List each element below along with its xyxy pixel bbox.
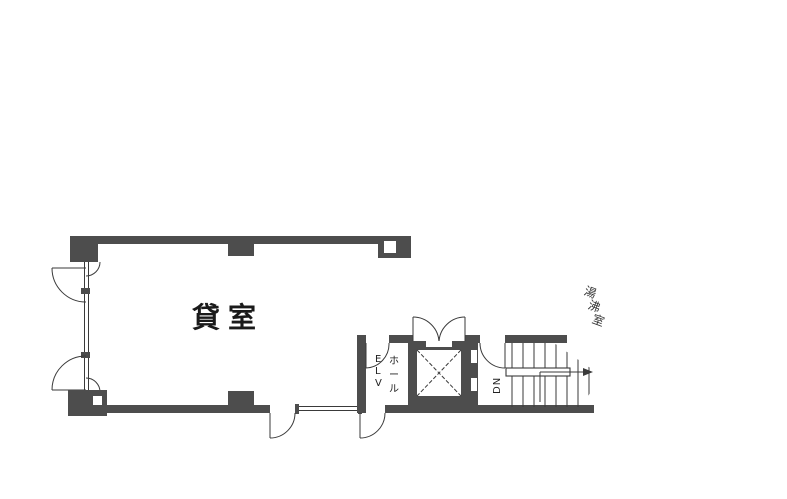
floor-plan-page: 貸室 E L V ホ ー ル: [0, 0, 787, 499]
pillar-top-mid: [228, 236, 254, 256]
staircase: DN: [492, 343, 600, 407]
floor-plan-svg: 貸室 E L V ホ ー ル: [0, 0, 787, 499]
casement-arc-top: [52, 268, 86, 302]
left-window-wall: [52, 262, 100, 392]
svg-text:L: L: [375, 366, 381, 377]
elevator-door: [426, 341, 452, 347]
stair-arrow-head: [583, 368, 593, 376]
stair-door: [480, 335, 505, 368]
kitchenette-label: 湯 沸 室: [582, 284, 606, 329]
bottom-door-hall: [360, 413, 385, 438]
svg-text:室: 室: [590, 311, 606, 329]
double-entry-door: [413, 317, 465, 343]
bottom-wall-left: [68, 405, 270, 413]
bottom-window: [297, 407, 360, 411]
bottom-door-left: [270, 413, 295, 438]
casement-arc-bottom: [52, 356, 86, 390]
pillar-bottom-mid: [228, 391, 254, 405]
main-room-label: 貸室: [192, 301, 264, 334]
pillar-top-left: [70, 236, 98, 262]
svg-text:ル: ル: [389, 384, 399, 395]
core-block: E L V ホ ー ル: [357, 317, 600, 413]
hall-left-wall: [357, 341, 366, 413]
svg-text:V: V: [375, 378, 382, 389]
bottom-wall-right: [385, 405, 594, 413]
elevator-shaft: [408, 341, 470, 405]
elv-hall-label: E L V ホ ー ル: [375, 354, 399, 395]
svg-text:E: E: [375, 354, 381, 365]
svg-text:ホ: ホ: [389, 355, 399, 367]
svg-text:ー: ー: [389, 370, 399, 381]
dn-label: DN: [492, 377, 503, 394]
